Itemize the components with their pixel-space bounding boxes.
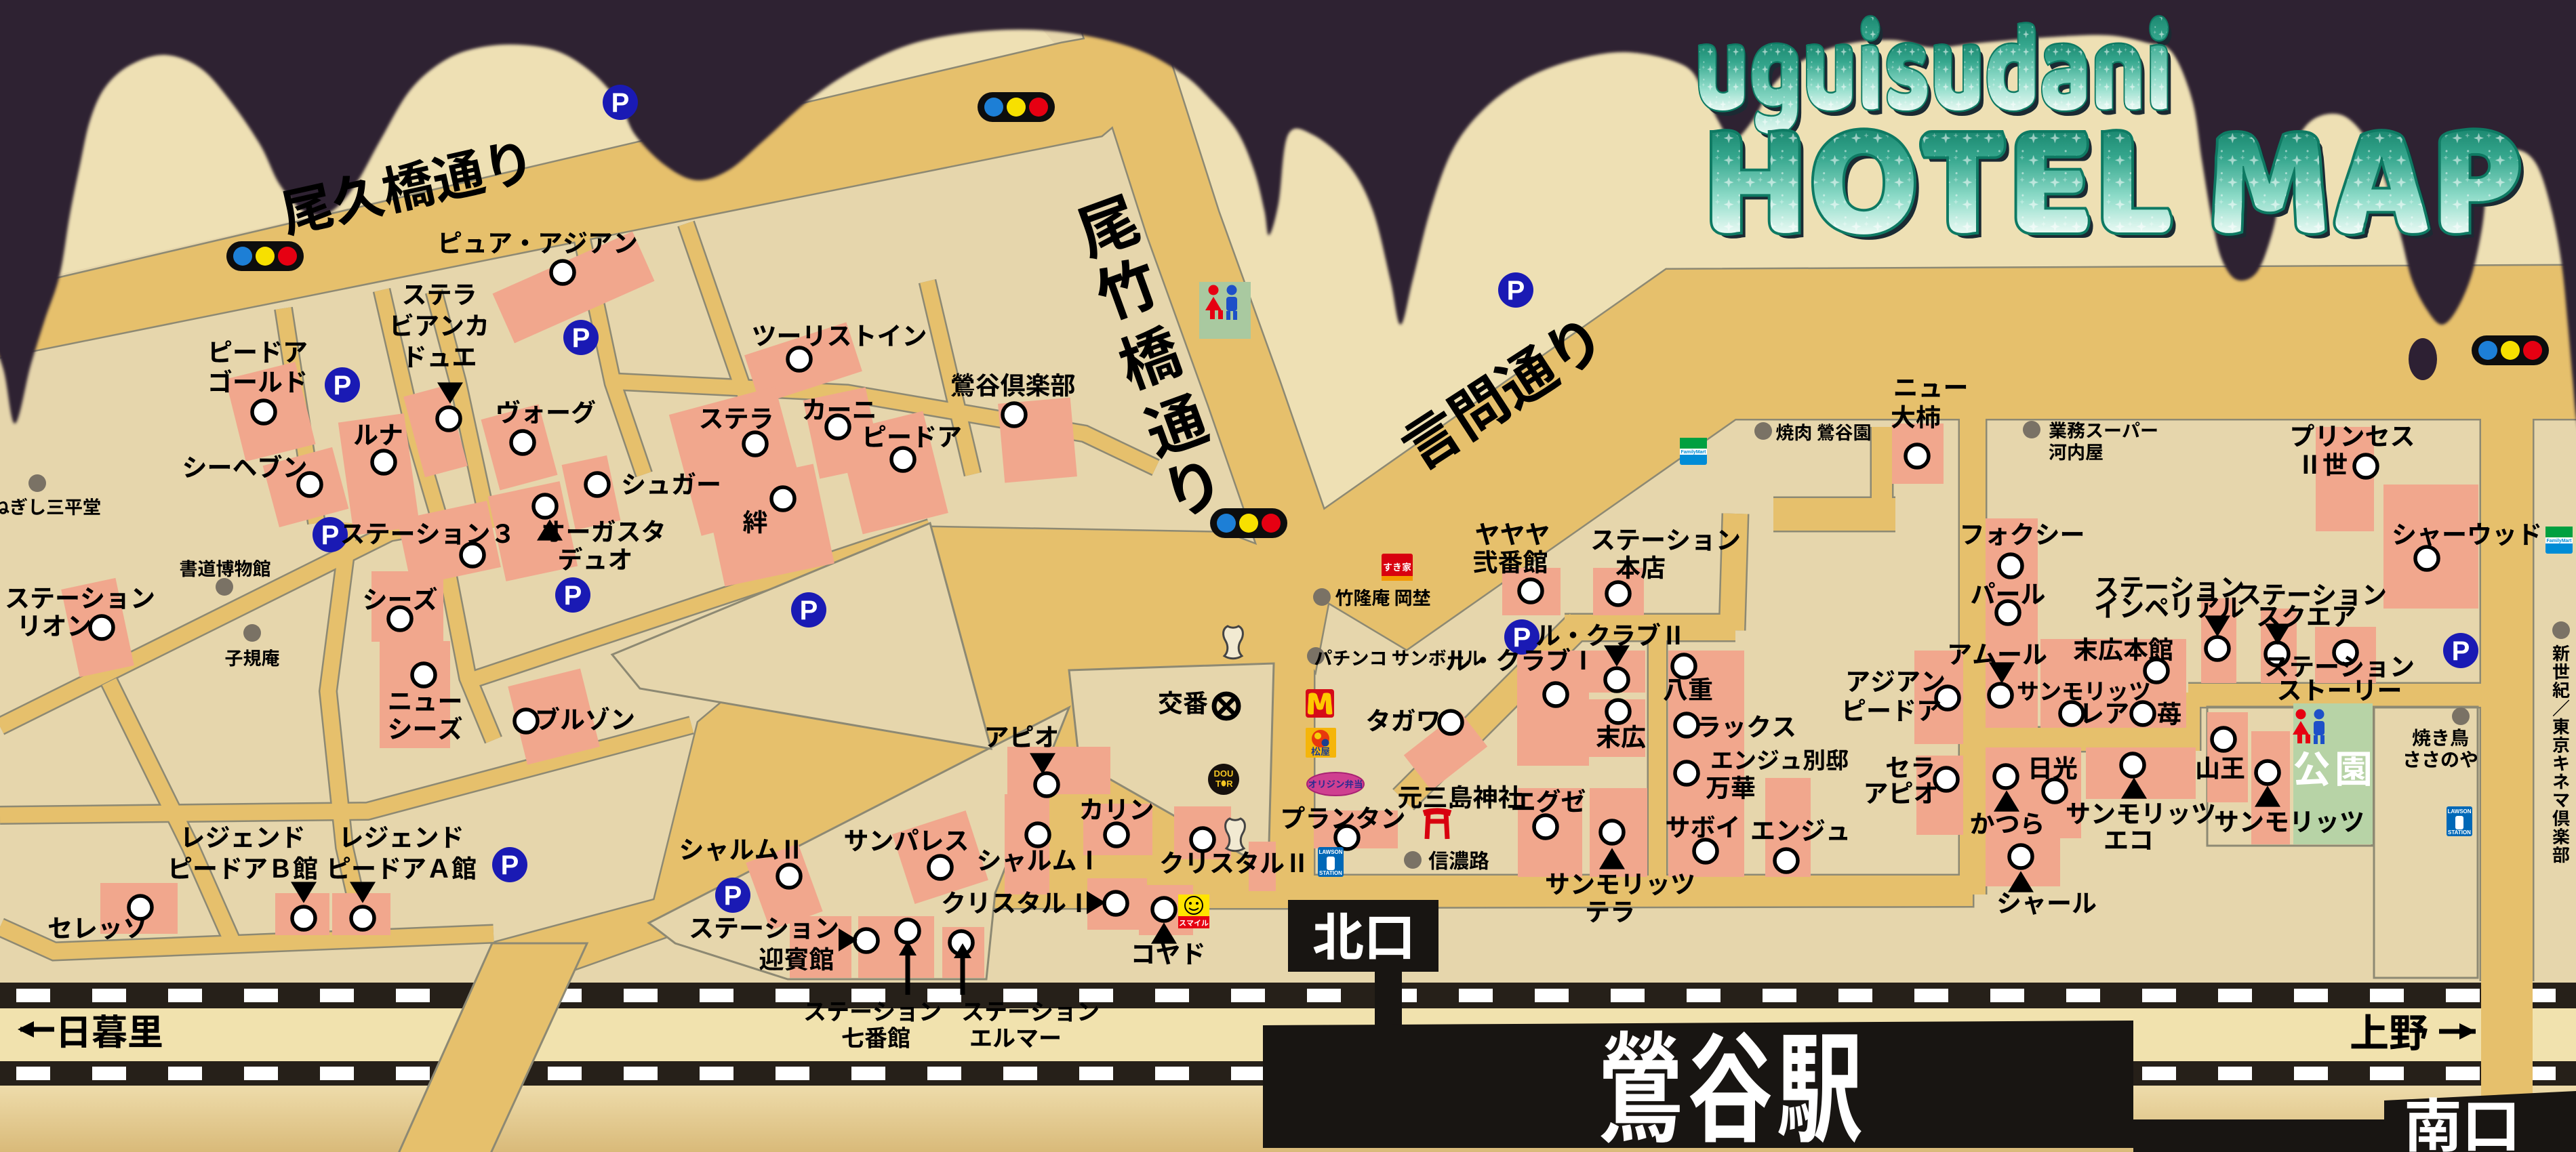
svg-text:FamilyMart: FamilyMart xyxy=(2547,539,2573,543)
svg-text:T: T xyxy=(1215,779,1221,789)
svg-text:LAWSON: LAWSON xyxy=(2447,808,2471,815)
svg-text:P: P xyxy=(501,850,519,880)
svg-text:DOU: DOU xyxy=(1214,768,1234,779)
svg-text:LAWSON: LAWSON xyxy=(1319,849,1342,855)
svg-text:P: P xyxy=(611,88,630,118)
svg-text:P: P xyxy=(321,520,340,550)
svg-text:P: P xyxy=(564,581,582,611)
svg-text:R: R xyxy=(1226,779,1233,789)
svg-text:P: P xyxy=(800,596,818,625)
svg-text:P: P xyxy=(334,371,352,400)
svg-text:P: P xyxy=(572,323,590,353)
svg-text:STATION: STATION xyxy=(2448,829,2471,836)
svg-text:P: P xyxy=(1513,623,1531,653)
svg-text:P: P xyxy=(1507,276,1525,306)
svg-text:STATION: STATION xyxy=(1319,870,1342,876)
svg-text:FamilyMart: FamilyMart xyxy=(1681,450,1707,455)
svg-text:P: P xyxy=(2452,636,2470,666)
svg-text:P: P xyxy=(724,881,742,911)
